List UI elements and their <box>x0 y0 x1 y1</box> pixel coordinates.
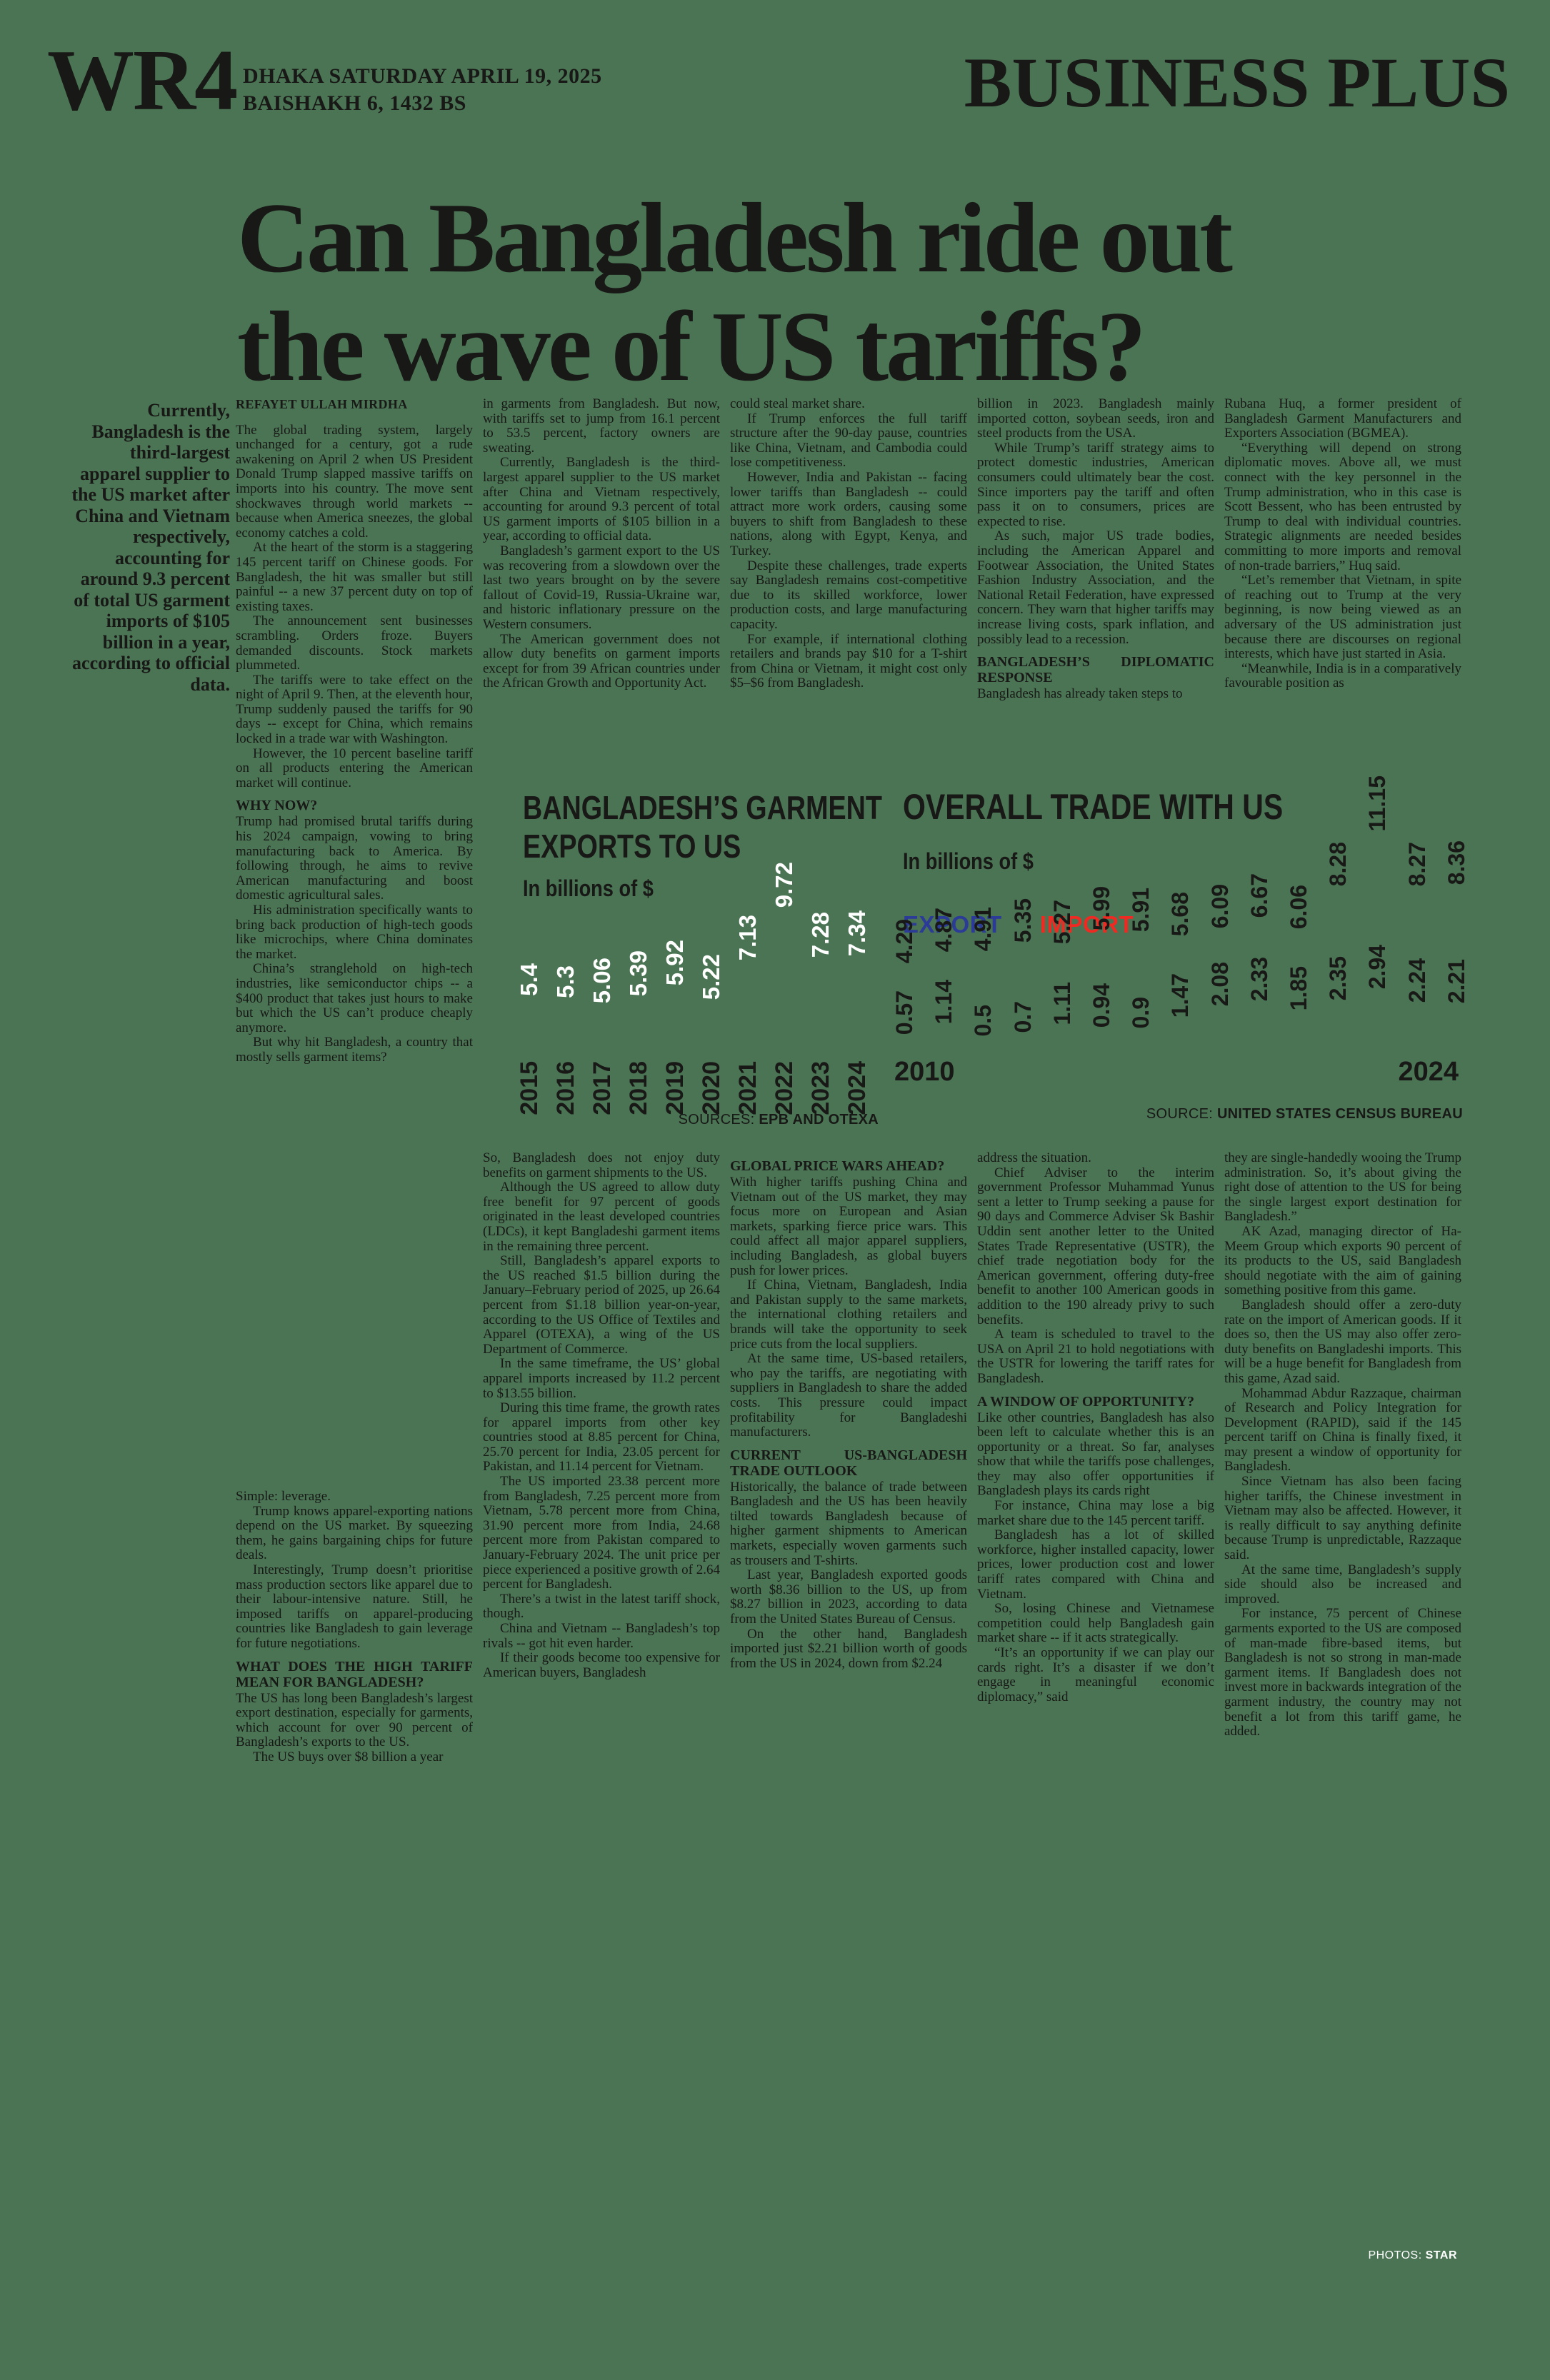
paragraph: address the situation. <box>977 1151 1214 1166</box>
chart2-export-label: 8.27 <box>1404 842 1431 886</box>
chart2-axis-end-year: 2024 <box>1398 1057 1459 1088</box>
paragraph: There’s a twist in the latest tariff sho… <box>483 1592 720 1622</box>
chart2-import-label: 1.14 <box>931 980 957 1024</box>
column-subheading: A WINDOW OF OPPORTUNITY? <box>977 1394 1214 1410</box>
article-column-top-2: in garments from Bangladesh. But now, wi… <box>483 397 720 767</box>
chart1-value-label: 7.28 <box>807 912 834 958</box>
chart1-value-label: 7.34 <box>844 910 871 956</box>
paragraph: Rubana Huq, a former president of Bangla… <box>1224 397 1461 441</box>
paragraph: For instance, China may lose a big marke… <box>977 1499 1214 1528</box>
chart1-source: SOURCES: EPB AND OTEXA <box>679 1112 879 1128</box>
main-headline: Can Bangladesh ride out the wave of US t… <box>237 184 1230 401</box>
chart1-value-label: 5.4 <box>516 963 543 996</box>
chart1-year-label: 2015 <box>516 1061 544 1115</box>
article-column-top-5: Rubana Huq, a former president of Bangla… <box>1224 397 1461 767</box>
chart1-value-label: 5.22 <box>698 954 725 1000</box>
column-subheading: WHY NOW? <box>236 798 473 813</box>
article-column-bottom-4: address the situation.Chief Adviser to t… <box>977 1151 1214 1807</box>
paragraph: Bangladesh has a lot of skilled workforc… <box>977 1528 1214 1602</box>
chart2-source-label: SOURCE: <box>1146 1106 1213 1122</box>
paragraph: For instance, 75 percent of Chinese garm… <box>1224 1607 1461 1739</box>
newspaper-page: WR4 DHAKA SATURDAY APRIL 19, 2025 BAISHA… <box>0 0 1550 2380</box>
paragraph: His administration specifically wants to… <box>236 903 473 962</box>
paragraph: The US buys over $8 billion a year <box>236 1750 473 1765</box>
calendar-line: BAISHAKH 6, 1432 BS <box>243 90 602 117</box>
article-column-top-4: billion in 2023. Bangladesh mainly impor… <box>977 397 1214 767</box>
headline-line-1: Can Bangladesh ride out <box>237 184 1230 293</box>
chart1-source-value: EPB AND OTEXA <box>759 1112 879 1128</box>
paragraph: The announcement sent businesses scrambl… <box>236 614 473 673</box>
chart2-import-label: 1.47 <box>1167 973 1194 1018</box>
article-column-bottom-5: they are single-handedly wooing the Trum… <box>1224 1151 1461 1807</box>
paragraph: If Trump enforces the full tariff struct… <box>730 412 967 471</box>
paragraph: Still, Bangladesh’s apparel exports to t… <box>483 1254 720 1357</box>
column-subheading: GLOBAL PRICE WARS AHEAD? <box>730 1158 967 1174</box>
chart2-export-label: 5.27 <box>1049 900 1076 944</box>
paragraph: “Everything will depend on strong diplom… <box>1224 441 1461 573</box>
chart2-import-label: 0.5 <box>970 1005 996 1036</box>
paragraph: While Trump’s tariff strategy aims to pr… <box>977 441 1214 530</box>
paragraph: A team is scheduled to travel to the USA… <box>977 1327 1214 1386</box>
paragraph: billion in 2023. Bangladesh mainly impor… <box>977 397 1214 441</box>
photo-credit: PHOTOS: STAR <box>1368 2249 1457 2262</box>
chart1-source-label: SOURCES: <box>679 1112 755 1128</box>
article-column-bottom-2: So, Bangladesh does not enjoy duty benef… <box>483 1151 720 1807</box>
chart2-import-label: 1.11 <box>1049 982 1076 1025</box>
chart2-import-label: 2.35 <box>1325 956 1351 1000</box>
headline-line-2: the wave of US tariffs? <box>237 293 1230 401</box>
paragraph: The American government does not allow d… <box>483 633 720 691</box>
chart2-import-label: 0.57 <box>891 990 918 1035</box>
article-column-bottom-3: GLOBAL PRICE WARS AHEAD?With higher tari… <box>730 1151 967 1807</box>
chart1-year-label: 2016 <box>552 1061 580 1115</box>
paragraph: So, losing Chinese and Vietnamese compet… <box>977 1602 1214 1646</box>
pull-quote: Currently, Bangladesh is the third-large… <box>66 400 230 695</box>
chart2-import-label: 2.33 <box>1246 957 1273 1001</box>
chart2-export-label: 11.15 <box>1364 775 1391 831</box>
paragraph: If China, Vietnam, Bangladesh, India and… <box>730 1278 967 1352</box>
chart2-import-label: 2.24 <box>1404 958 1431 1003</box>
paragraph: At the same time, Bangladesh’s supply si… <box>1224 1563 1461 1607</box>
chart1-year-label: 2023 <box>807 1061 835 1115</box>
photo-credit-label: PHOTOS: <box>1368 2249 1421 2261</box>
paragraph: they are single-handedly wooing the Trum… <box>1224 1151 1461 1225</box>
article-column-top-1: REFAYET ULLAH MIRDHAThe global trading s… <box>236 397 473 1143</box>
paragraph: Like other countries, Bangladesh has als… <box>977 1411 1214 1500</box>
chart1-value-label: 5.06 <box>589 958 616 1003</box>
paragraph: could steal market share. <box>730 397 967 412</box>
paragraph: If their goods become too expensive for … <box>483 1651 720 1680</box>
chart1-value-label: 9.72 <box>771 862 798 908</box>
masthead-dateblock: DHAKA SATURDAY APRIL 19, 2025 BAISHAKH 6… <box>243 63 602 117</box>
paragraph: China and Vietnam -- Bangladesh’s top ri… <box>483 1622 720 1651</box>
paragraph: The US has long been Bangladesh’s larges… <box>236 1692 473 1750</box>
paragraph: Despite these challenges, trade experts … <box>730 559 967 633</box>
chart2-title: OVERALL TRADE WITH US <box>903 787 1430 827</box>
chart2-import-label: 0.9 <box>1128 997 1154 1028</box>
chart2-axis-start-year: 2010 <box>894 1057 955 1088</box>
paragraph: Last year, Bangladesh exported goods wor… <box>730 1568 967 1627</box>
chart2-export-label: 5.99 <box>1089 886 1115 930</box>
chart2-import-label: 0.94 <box>1089 983 1115 1028</box>
chart2-import-label: 2.94 <box>1364 945 1391 989</box>
chart2-import-label: 0.7 <box>1010 1001 1036 1033</box>
paragraph: “Meanwhile, India is in a comparatively … <box>1224 662 1461 691</box>
chart2-export-label: 4.87 <box>931 908 957 952</box>
chart1-value-label: 5.92 <box>661 940 689 985</box>
paragraph: But why hit Bangladesh, a country that m… <box>236 1035 473 1065</box>
chart1-year-label: 2017 <box>589 1061 616 1115</box>
paragraph: At the heart of the storm is a staggerin… <box>236 541 473 614</box>
chart1-value-label: 7.13 <box>734 915 761 960</box>
paragraph: In the same timeframe, the US’ global ap… <box>483 1357 720 1401</box>
chart2-export-label: 5.91 <box>1128 888 1154 932</box>
chart1-year-label: 2018 <box>625 1061 653 1115</box>
article-column-top-3: could steal market share.If Trump enforc… <box>730 397 967 767</box>
date-line: DHAKA SATURDAY APRIL 19, 2025 <box>243 63 602 90</box>
paragraph: Interestingly, Trump doesn’t prioritise … <box>236 1563 473 1652</box>
chart1-year-label: 2019 <box>661 1061 689 1115</box>
paragraph: China’s stranglehold on high-tech indust… <box>236 962 473 1035</box>
paragraph: The tariffs were to take effect on the n… <box>236 673 473 747</box>
page-code: WR4 <box>47 37 236 124</box>
chart1-year-label: 2022 <box>771 1061 799 1115</box>
paragraph: Chief Adviser to the interim government … <box>977 1166 1214 1328</box>
chart1-year-label: 2024 <box>844 1061 871 1115</box>
paragraph: So, Bangladesh does not enjoy duty benef… <box>483 1151 720 1180</box>
paragraph: Currently, Bangladesh is the third-large… <box>483 456 720 544</box>
paragraph: AK Azad, managing director of Ha-Meem Gr… <box>1224 1225 1461 1298</box>
paragraph: Trump had promised brutal tariffs during… <box>236 815 473 903</box>
paragraph: However, the 10 percent baseline tariff … <box>236 747 473 791</box>
chart2-source-value: UNITED STATES CENSUS BUREAU <box>1217 1106 1463 1122</box>
chart-garment-exports: BANGLADESH’S GARMENT EXPORTS TO US In bi… <box>511 771 883 1121</box>
paragraph: Trump knows apparel-exporting nations de… <box>236 1505 473 1563</box>
chart2-export-label: 8.36 <box>1444 840 1470 885</box>
paragraph: On the other hand, Bangladesh imported j… <box>730 1627 967 1672</box>
chart1-value-label: 5.39 <box>625 950 652 996</box>
paragraph: Since Vietnam has also been facing highe… <box>1224 1475 1461 1563</box>
chart1-year-label: 2020 <box>698 1061 726 1115</box>
paragraph: The US imported 23.38 percent more from … <box>483 1475 720 1592</box>
chart2-export-label: 5.68 <box>1167 892 1194 936</box>
chart2-export-label: 4.91 <box>970 907 996 951</box>
chart2-import-label: 2.21 <box>1444 959 1470 1003</box>
chart1-year-label: 2021 <box>734 1061 762 1115</box>
paragraph: “It’s an opportunity if we can play our … <box>977 1646 1214 1704</box>
paragraph: With higher tariffs pushing China and Vi… <box>730 1175 967 1278</box>
paragraph: in garments from Bangladesh. But now, wi… <box>483 397 720 456</box>
paragraph: For example, if international clothing r… <box>730 633 967 691</box>
paragraph: Bangladesh’s garment export to the US wa… <box>483 544 720 633</box>
chart1-subtitle: In billions of $ <box>523 875 654 902</box>
paragraph: Mohammad Abdur Razzaque, chairman of Res… <box>1224 1387 1461 1475</box>
chart2-export-label: 4.29 <box>891 919 918 963</box>
chart2-export-label: 6.67 <box>1246 873 1273 918</box>
chart2-subtitle: In billions of $ <box>903 848 1034 875</box>
paragraph: At the same time, US-based retailers, wh… <box>730 1352 967 1440</box>
article-column-bottom-1: Simple: leverage.Trump knows apparel-exp… <box>236 1490 473 1807</box>
chart-overall-trade: OVERALL TRADE WITH US In billions of $ E… <box>889 771 1464 1121</box>
chart1-title: BANGLADESH’S GARMENT EXPORTS TO US <box>523 788 909 865</box>
paragraph: As such, major US trade bodies, includin… <box>977 529 1214 647</box>
byline: REFAYET ULLAH MIRDHA <box>236 397 473 412</box>
section-title: BUSINESS PLUS <box>964 47 1510 119</box>
chart2-import-label: 2.08 <box>1207 962 1234 1006</box>
chart1-value-label: 5.3 <box>552 965 579 998</box>
paragraph: Although the US agreed to allow duty fre… <box>483 1180 720 1254</box>
column-subheading: CURRENT US-BANGLADESH TRADE OUTLOOK <box>730 1447 967 1479</box>
paragraph: However, India and Pakistan -- facing lo… <box>730 471 967 559</box>
chart2-import-label: 1.85 <box>1286 966 1312 1010</box>
paragraph: Historically, the balance of trade betwe… <box>730 1480 967 1569</box>
chart2-export-label: 6.09 <box>1207 884 1234 928</box>
photo-credit-name: STAR <box>1426 2249 1457 2261</box>
chart2-export-label: 5.35 <box>1010 898 1036 943</box>
paragraph: Simple: leverage. <box>236 1490 473 1505</box>
paragraph: Bangladesh should offer a zero-duty rate… <box>1224 1298 1461 1387</box>
paragraph: During this time frame, the growth rates… <box>483 1401 720 1475</box>
column-subheading: WHAT DOES THE HIGH TARIFF MEAN FOR BANGL… <box>236 1659 473 1690</box>
chart2-source: SOURCE: UNITED STATES CENSUS BUREAU <box>1146 1106 1463 1123</box>
chart2-export-label: 6.06 <box>1286 885 1312 929</box>
paragraph: Bangladesh has already taken steps to <box>977 687 1214 702</box>
column-subheading: BANGLADESH’S DIPLOMATIC RESPONSE <box>977 654 1214 686</box>
paragraph: The global trading system, largely uncha… <box>236 423 473 541</box>
chart2-export-label: 8.28 <box>1325 842 1351 886</box>
paragraph: “Let’s remember that Vietnam, in spite o… <box>1224 573 1461 662</box>
